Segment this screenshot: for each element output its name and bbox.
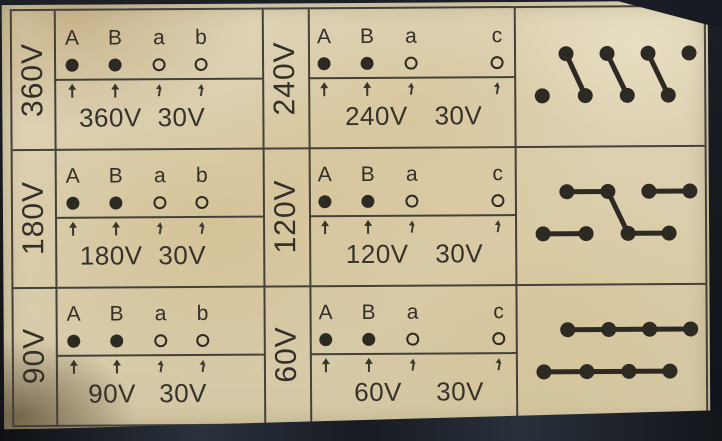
- terminal-label: a: [406, 163, 418, 187]
- up-arrow-icon: [362, 82, 372, 97]
- terminal-dot: [195, 58, 208, 71]
- primary-voltage: 360V: [79, 102, 142, 133]
- label-paper: 360V A B a: [2, 1, 711, 429]
- terminal-label: c: [492, 162, 503, 186]
- terminal-dot: [362, 333, 375, 346]
- row-label-cell: 180V: [13, 149, 56, 287]
- terminal-dot: [318, 57, 331, 70]
- terminal-label: b: [195, 26, 207, 50]
- terminal-dot: [195, 196, 208, 209]
- primary-voltage: 180V: [80, 240, 143, 271]
- row-label-cell: 90V: [13, 287, 56, 425]
- terminal-dot: [406, 333, 419, 346]
- terminal-dot: [492, 332, 505, 345]
- up-arrow-icon: [494, 357, 504, 372]
- row-label-cell: 360V: [12, 11, 55, 149]
- up-arrow-icon: [67, 84, 77, 99]
- terminal-dot: [153, 58, 166, 71]
- secondary-voltage: 30V: [435, 238, 483, 269]
- winding-connection-diagram: [515, 283, 706, 420]
- secondary-voltage: 30V: [157, 102, 205, 133]
- up-arrow-icon: [492, 81, 502, 96]
- tap-cell-180v: A B a b: [55, 148, 264, 287]
- primary-voltage: 120V: [346, 239, 409, 270]
- table-row: 90V A B a: [13, 283, 706, 425]
- up-arrow-icon: [320, 220, 330, 235]
- winding-connection-diagram: [515, 145, 706, 282]
- terminal-label: b: [197, 302, 209, 326]
- terminal-label: c: [493, 300, 504, 324]
- up-arrow-icon: [363, 220, 373, 235]
- row-voltage-label: 360V: [16, 43, 50, 117]
- terminal-dot: [361, 57, 374, 70]
- diagram-cell: [515, 145, 706, 284]
- up-arrow-icon: [155, 221, 165, 236]
- terminal-label: B: [108, 26, 122, 50]
- row-voltage-label: 180V: [17, 181, 51, 255]
- terminal-dot: [66, 59, 79, 72]
- row-label-cell: 60V: [263, 285, 310, 423]
- tap-cell-360v: A B a b: [54, 10, 263, 149]
- up-arrow-icon: [154, 83, 164, 98]
- row-voltage-label: 120V: [269, 179, 303, 253]
- secondary-voltage: 30V: [158, 240, 206, 271]
- row-voltage-label: 60V: [270, 326, 304, 383]
- terminal-dot: [491, 56, 504, 69]
- terminal-label: A: [67, 303, 81, 327]
- terminal-label: A: [66, 165, 80, 189]
- winding-connection-diagram: [514, 7, 705, 144]
- terminal-dot: [491, 194, 504, 207]
- up-arrow-icon: [493, 219, 503, 234]
- terminal-dot: [154, 334, 167, 347]
- terminal-label: c: [492, 24, 503, 48]
- terminal-label: a: [407, 301, 419, 325]
- terminal-dot: [318, 195, 331, 208]
- diagram-cell: [515, 283, 706, 422]
- terminal-label: A: [318, 163, 332, 187]
- up-arrow-icon: [112, 359, 122, 374]
- terminal-label: B: [110, 302, 124, 326]
- terminal-dot: [196, 334, 209, 347]
- up-arrow-icon: [111, 221, 121, 236]
- up-arrow-icon: [198, 359, 208, 374]
- terminal-dot: [67, 335, 80, 348]
- photo-background: 360V A B a: [0, 0, 722, 441]
- up-arrow-icon: [69, 360, 79, 375]
- terminal-label: B: [360, 25, 374, 49]
- row-label-cell: 120V: [263, 147, 310, 285]
- terminal-dot: [361, 195, 374, 208]
- up-arrow-icon: [110, 83, 120, 98]
- up-arrow-icon: [321, 358, 331, 373]
- up-arrow-icon: [408, 358, 418, 373]
- primary-voltage: 240V: [345, 101, 408, 132]
- primary-voltage: 90V: [88, 378, 136, 409]
- terminal-dot: [110, 334, 123, 347]
- up-arrow-icon: [406, 82, 416, 97]
- terminal-label: B: [362, 301, 376, 325]
- up-arrow-icon: [319, 82, 329, 97]
- tap-cell-60v: A B a c: [309, 284, 516, 423]
- row-voltage-label: 240V: [268, 41, 302, 115]
- terminal-label: b: [196, 164, 208, 188]
- table-row: 360V A B a: [12, 7, 705, 149]
- terminal-dot: [405, 57, 418, 70]
- terminal-label: a: [153, 26, 165, 50]
- up-arrow-icon: [68, 222, 78, 237]
- up-arrow-icon: [364, 358, 374, 373]
- terminal-label: A: [65, 27, 79, 51]
- terminal-dot: [405, 195, 418, 208]
- secondary-voltage: 30V: [159, 378, 207, 409]
- up-arrow-icon: [156, 359, 166, 374]
- row-voltage-label: 90V: [18, 328, 52, 385]
- terminal-label: a: [405, 25, 417, 49]
- diagram-cell: [514, 7, 705, 146]
- secondary-voltage: 30V: [434, 100, 482, 131]
- voltage-table: 360V A B a: [10, 5, 709, 427]
- terminal-label: a: [154, 164, 166, 188]
- up-arrow-icon: [196, 83, 206, 98]
- terminal-label: B: [109, 164, 123, 188]
- tap-cell-120v: A B a c: [309, 146, 516, 285]
- terminal-dot: [153, 196, 166, 209]
- tap-cell-240v: A B a c: [308, 8, 515, 147]
- terminal-label: A: [319, 301, 333, 325]
- terminal-dot: [109, 58, 122, 71]
- up-arrow-icon: [197, 221, 207, 236]
- row-label-cell: 240V: [262, 9, 309, 147]
- secondary-voltage: 30V: [436, 376, 484, 407]
- terminal-label: a: [155, 302, 167, 326]
- primary-voltage: 60V: [354, 377, 402, 408]
- terminal-dot: [319, 333, 332, 346]
- terminal-dot: [109, 196, 122, 209]
- tap-cell-90v: A B a b: [55, 286, 264, 425]
- terminal-label: A: [317, 25, 331, 49]
- up-arrow-icon: [407, 220, 417, 235]
- terminal-dot: [66, 197, 79, 210]
- table-row: 180V A B a: [13, 145, 706, 287]
- terminal-label: B: [361, 163, 375, 187]
